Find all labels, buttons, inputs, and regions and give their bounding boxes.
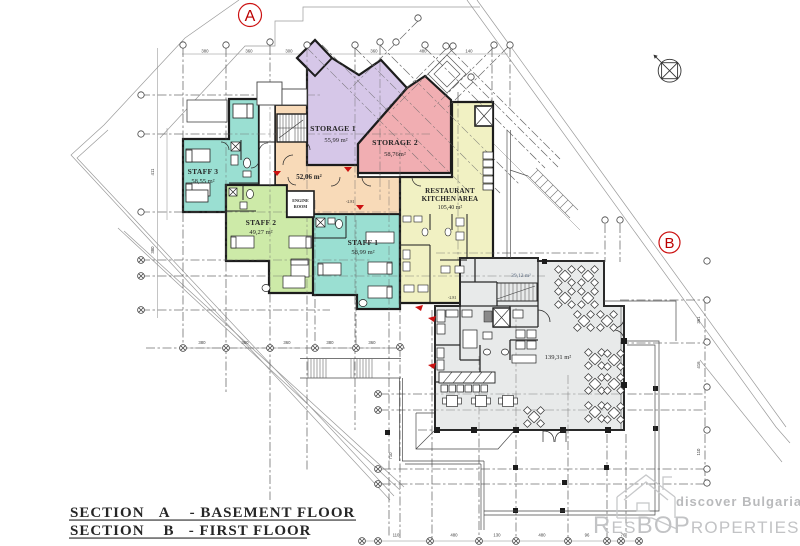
svg-text:360: 360	[283, 340, 291, 345]
svg-text:140: 140	[465, 49, 473, 54]
svg-text:110: 110	[696, 448, 701, 455]
svg-text:58,76m²: 58,76m²	[384, 151, 406, 158]
svg-text:96: 96	[585, 533, 590, 538]
svg-text:710: 710	[388, 452, 393, 460]
svg-text:58,55 m²: 58,55 m²	[191, 178, 214, 185]
svg-text:480: 480	[419, 49, 427, 54]
svg-text:SECTION B - FIRST FLOOR: SECTION B - FIRST FLOOR	[70, 523, 312, 539]
svg-text:360: 360	[241, 340, 249, 345]
svg-text:SECTION A - BASEMENT FLOO: SECTION A - BASEMENT FLOOR	[70, 505, 355, 521]
svg-text:360: 360	[368, 340, 376, 345]
svg-text:B: B	[664, 235, 674, 252]
svg-text:480: 480	[538, 533, 546, 538]
svg-text:STAFF 3: STAFF 3	[188, 167, 219, 176]
svg-text:380: 380	[326, 340, 334, 345]
svg-text:52,06 m²: 52,06 m²	[296, 173, 321, 181]
svg-text:380: 380	[201, 49, 209, 54]
svg-text:105,40 m²: 105,40 m²	[438, 205, 463, 211]
svg-text:STAFF 2: STAFF 2	[246, 218, 277, 227]
svg-text:ROOM: ROOM	[294, 204, 308, 209]
svg-text:39,12 m²: 39,12 m²	[511, 273, 531, 279]
svg-text:RESBOPROPERTIES: RESBOPROPERTIES	[593, 512, 800, 539]
svg-text:300: 300	[285, 49, 293, 54]
svg-text:361: 361	[696, 316, 701, 324]
svg-text:discover Bulgaria: discover Bulgaria	[676, 494, 800, 509]
svg-text:58,99 m²: 58,99 m²	[351, 249, 374, 256]
svg-text:110: 110	[393, 533, 400, 538]
svg-text:411: 411	[150, 168, 155, 175]
svg-text:KITCHEN AREA: KITCHEN AREA	[422, 195, 479, 203]
svg-text:416: 416	[696, 361, 701, 369]
svg-text:STORAGE 1: STORAGE 1	[310, 124, 356, 133]
svg-text:55,99 m²: 55,99 m²	[324, 137, 347, 144]
svg-text:380: 380	[150, 246, 155, 254]
svg-text:49,27 m²: 49,27 m²	[249, 229, 272, 236]
svg-text:ENGINE: ENGINE	[292, 198, 309, 203]
svg-text:STORAGE 2: STORAGE 2	[372, 138, 418, 147]
svg-text:STAFF 1: STAFF 1	[348, 238, 379, 247]
svg-text:RESTAURANT: RESTAURANT	[425, 187, 475, 195]
svg-text:380: 380	[198, 340, 206, 345]
svg-text:130: 130	[493, 533, 501, 538]
svg-text:139,31 m²: 139,31 m²	[545, 354, 572, 361]
svg-text:360: 360	[245, 49, 253, 54]
svg-text:-2.81: -2.81	[346, 199, 354, 204]
svg-text:-2.81: -2.81	[448, 295, 456, 300]
svg-text:480: 480	[450, 533, 458, 538]
svg-text:A: A	[245, 8, 256, 25]
svg-text:360: 360	[370, 49, 378, 54]
